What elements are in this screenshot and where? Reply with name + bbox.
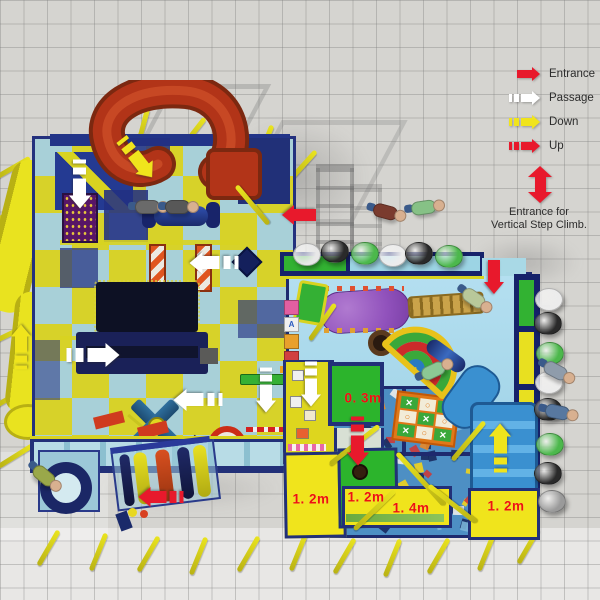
beanbag — [405, 242, 433, 265]
entrance-arrow — [517, 67, 540, 81]
tic-tac-toe-cell-x[interactable]: ✕ — [417, 412, 435, 426]
legend-arrow-cell — [506, 91, 540, 105]
person-figure — [543, 399, 580, 426]
navy-deck-panel — [60, 248, 98, 288]
tic-tac-toe-cell-o[interactable]: ○ — [415, 426, 433, 440]
up-arrow — [509, 139, 540, 153]
legend-label-passage: Passage — [549, 92, 594, 104]
letter-block: A — [284, 317, 299, 332]
floor-toy — [140, 510, 148, 518]
beanbag — [534, 462, 562, 485]
legend-row-entrance: Entrance — [506, 62, 600, 86]
legend-arrow-cell — [506, 67, 540, 81]
tic-tac-toe-cell-o[interactable]: ○ — [398, 410, 416, 424]
legend-label-up: Up — [549, 140, 564, 152]
vertical-step-climb-arrow-icon — [528, 166, 552, 203]
entrance-arrow — [282, 205, 316, 225]
down-arrow — [11, 325, 31, 370]
foam-block — [423, 469, 432, 478]
trampoline-mat — [96, 282, 198, 332]
beanbag — [538, 490, 566, 513]
up-arrow — [139, 487, 184, 507]
letter-blocks: A — [284, 300, 299, 368]
passage-arrow — [67, 343, 120, 367]
passage-arrow — [509, 91, 540, 105]
pink-dotted-strip — [288, 444, 326, 451]
person-head — [565, 408, 579, 422]
legend-note-line1: Entrance for — [472, 206, 600, 219]
navy-deck-panel — [32, 340, 60, 400]
caterpillar-feet — [324, 286, 404, 291]
gray-block — [200, 348, 218, 364]
person-head — [432, 199, 446, 213]
measurement-label: 1. 4m — [392, 501, 429, 516]
activity-panel[interactable] — [296, 428, 309, 439]
measurement-label: 1. 2m — [487, 499, 524, 514]
panel-knob — [352, 464, 368, 480]
right-wall-panel — [519, 332, 534, 384]
measurement-label: 1. 2m — [347, 490, 384, 505]
activity-panel[interactable] — [304, 410, 316, 421]
height-panel-yellow — [468, 488, 540, 540]
legend-row-passage: Passage — [506, 86, 600, 110]
beanbag — [321, 240, 349, 263]
slide-exit-box — [206, 148, 262, 200]
passage-arrow — [69, 160, 91, 209]
passage-arrow — [190, 252, 239, 274]
tic-tac-toe-cell-x[interactable]: ✕ — [400, 396, 418, 410]
person-figure — [410, 194, 446, 219]
legend-row-down: Down — [506, 110, 600, 134]
tic-tac-toe-cell-x[interactable]: ✕ — [434, 428, 452, 442]
passage-arrow — [256, 368, 276, 413]
legend-rows: EntrancePassageDownUp — [466, 62, 600, 158]
up-arrow — [347, 417, 369, 466]
passage-arrow — [174, 389, 223, 411]
legend-label-down: Down — [549, 116, 578, 128]
legend: EntrancePassageDownUp Entrance for Verti… — [466, 62, 600, 232]
passage-arrow — [301, 362, 321, 407]
beanbag — [379, 244, 407, 267]
floor-toy — [128, 508, 137, 517]
navy-deck-panel — [238, 300, 288, 338]
measurement-label: 0. 3m — [344, 391, 381, 406]
down-arrow — [509, 115, 540, 129]
legend-note: Entrance for Vertical Step Climb. — [472, 206, 600, 232]
letter-block — [284, 334, 299, 349]
beanbag — [293, 243, 321, 266]
tic-tac-toe-cell-x[interactable]: ✕ — [397, 424, 415, 438]
roller-cap — [206, 202, 220, 228]
entrance-arrow — [484, 260, 504, 294]
beanbag — [351, 242, 379, 265]
right-wall-panel — [519, 280, 534, 326]
legend-note-line2: Vertical Step Climb. — [472, 219, 600, 232]
beanbag — [435, 245, 463, 268]
beanbag — [536, 433, 564, 456]
playground-plan-canvas: ✕○✕○✕○✕○✕ A — [0, 0, 600, 600]
person-head — [187, 201, 199, 213]
legend-label-entrance: Entrance — [549, 68, 595, 80]
legend-arrow-cell — [506, 139, 540, 153]
letter-block — [284, 300, 299, 315]
down-arrow — [489, 424, 511, 473]
person-figure — [165, 196, 199, 216]
measurement-label: 1. 2m — [292, 492, 329, 507]
beanbag — [535, 288, 563, 311]
beanbag — [534, 312, 562, 335]
legend-arrow-cell — [506, 115, 540, 129]
legend-row-up: Up — [506, 134, 600, 158]
